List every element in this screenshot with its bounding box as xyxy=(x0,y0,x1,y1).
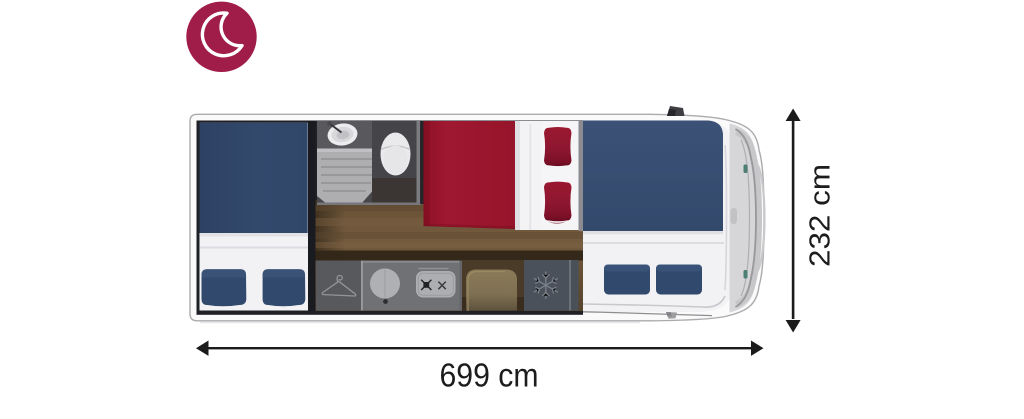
svg-text:699 cm: 699 cm xyxy=(440,357,539,394)
svg-text:232 cm: 232 cm xyxy=(805,164,837,267)
